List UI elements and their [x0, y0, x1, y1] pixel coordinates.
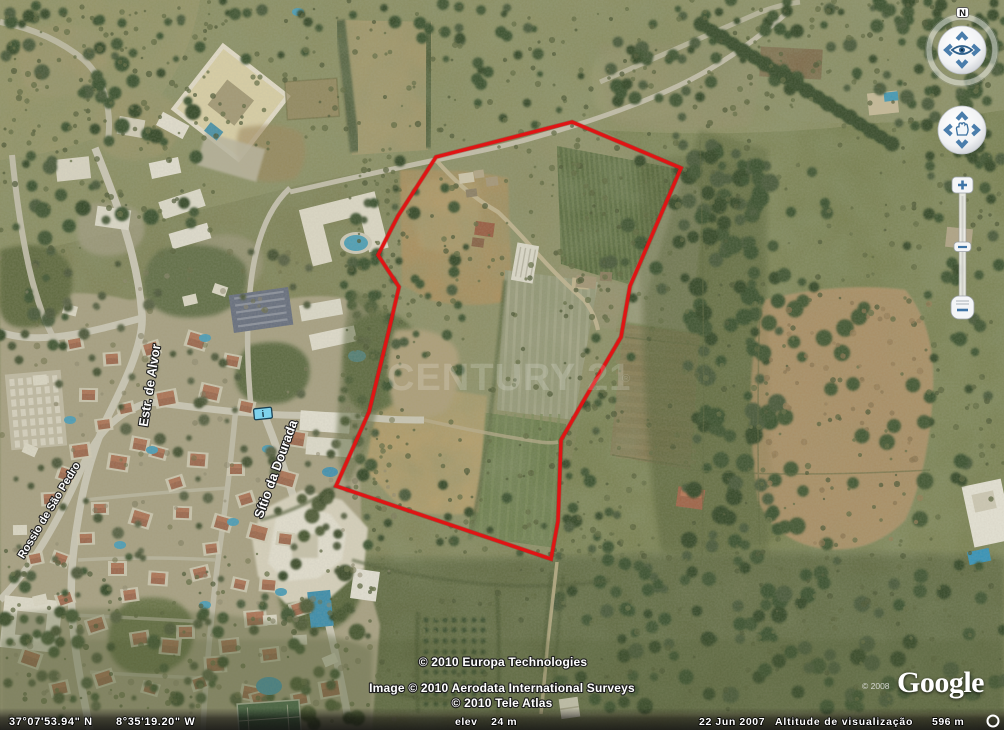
svg-text:© 2010 Tele Atlas: © 2010 Tele Atlas — [452, 696, 553, 710]
svg-text:elev 24 m: elev 24 m — [455, 716, 517, 728]
svg-text:Image © 2010 Aerodata Internat: Image © 2010 Aerodata International Surv… — [369, 681, 635, 695]
svg-text:N: N — [959, 8, 966, 19]
svg-text:596 m: 596 m — [932, 716, 964, 728]
svg-text:37°07'53.94" N: 37°07'53.94" N — [9, 716, 93, 728]
svg-text:Altitude de visualização: Altitude de visualização — [775, 716, 913, 728]
svg-text:© 2008: © 2008 — [862, 681, 890, 691]
svg-text:© 2010 Europa Technologies: © 2010 Europa Technologies — [419, 655, 588, 669]
svg-text:CENTURY 21: CENTURY 21 — [387, 357, 631, 399]
svg-text:8°35'19.20" W: 8°35'19.20" W — [116, 716, 195, 728]
svg-text:22 Jun 2007: 22 Jun 2007 — [699, 716, 765, 728]
svg-text:®: ® — [622, 373, 630, 385]
svg-text:Google: Google — [897, 666, 984, 699]
